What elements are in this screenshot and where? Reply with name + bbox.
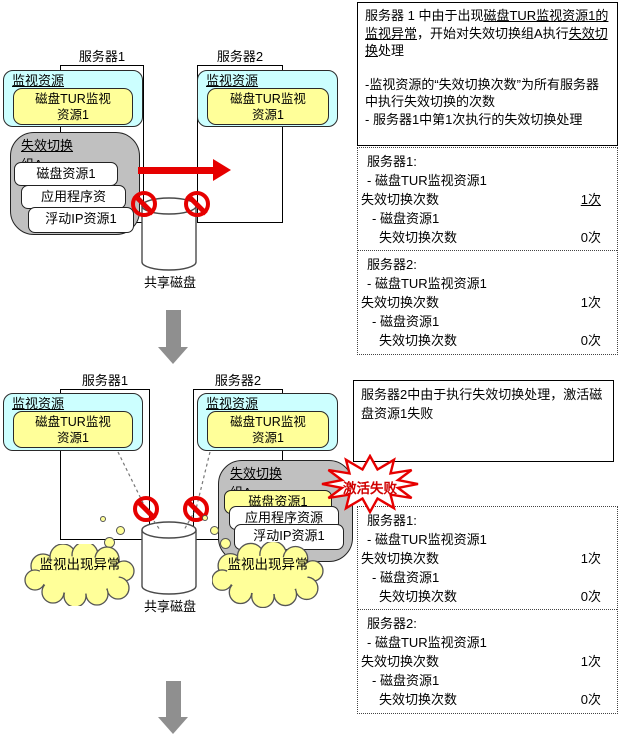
down-arrow-icon [166,681,181,717]
failover-arrow-head [213,159,231,181]
note-bullets: -监视资源的“失效切换次数”为所有服务器中执行失效切换的次数- 服务器1中第1次… [365,76,610,129]
stats-row: - 磁盘TUR监视资源1 [358,530,617,549]
monitor-resources-label: 监视资源 [4,71,142,88]
failover-diagram-page: 服务器1 服务器2 失效切换组A 磁盘资源1 应用程序资 浮动IP资源1 监视资… [0,0,620,737]
stats-row: 失效切换次数0次 [358,690,617,709]
server2-label-top: 服务器2 [195,49,285,65]
failover-stats-panel-top: 服务器1:- 磁盘TUR监视资源1失效切换次数1次- 磁盘资源1失效切换次数0次… [357,147,618,355]
stats-row-label: 失效切换次数 [379,230,457,245]
activation-failed-label: 激活失败 [330,477,410,497]
stats-row: 失效切换次数0次 [358,331,617,350]
disk-tur-monitor-resource-text: 磁盘TUR监视资源1 [32,91,114,123]
stats-row-label: 失效切换次数 [379,692,457,707]
note-text: 服务器2中由于执行失效切换处理，激活磁盘资源1失败 [361,385,606,423]
stats-row-label: 失效切换次数 [361,654,439,669]
server1-label-top: 服务器1 [57,49,147,65]
stats-row: - 磁盘资源1 [358,312,617,331]
stats-row-value: 1次 [581,652,601,671]
monitor-resources-label: 监视资源 [198,71,337,88]
stats-row: - 磁盘资源1 [358,671,617,690]
floating-ip-resource-box-top: 浮动IP资源1 [28,207,134,233]
stats-row-label: - 磁盘资源1 [372,570,439,585]
stats-divider [358,609,617,610]
stats-row: - 磁盘资源1 [358,568,617,587]
stats-row-label: - 磁盘资源1 [372,673,439,688]
stats-row-label: - 磁盘TUR监视资源1 [367,635,487,650]
stats-row: - 磁盘TUR监视资源1 [358,274,617,293]
stats-row: 失效切换次数1次 [358,293,617,312]
stats-section: 服务器1:- 磁盘TUR监视资源1失效切换次数1次- 磁盘资源1失效切换次数0次 [358,150,617,247]
disk-tur-monitor-resource-text: 磁盘TUR监视资源1 [227,414,309,446]
note-text-run: 处理 [378,43,404,58]
server1-label-bottom: 服务器1 [60,373,150,389]
stats-row: 失效切换次数1次 [358,190,617,209]
stats-server-title: 服务器2: [358,253,617,274]
stats-row-label: 失效切换次数 [361,192,439,207]
stats-row: 失效切换次数1次 [358,652,617,671]
cloud-tail-bubble [210,526,219,535]
stats-row-value: 1次 [581,190,601,209]
no-entry-icon [133,496,159,522]
note-text-run: 服务器 1 中由于出现 [365,8,483,23]
disk-resource-box-top: 磁盘资源1 [14,162,118,186]
stats-row-value: 0次 [581,228,601,247]
stats-row-value: 0次 [581,331,601,350]
stats-section: 服务器2:- 磁盘TUR监视资源1失效切换次数1次- 磁盘资源1失效切换次数0次 [358,612,617,709]
stats-row: - 磁盘TUR监视资源1 [358,633,617,652]
stats-row-label: 失效切换次数 [361,551,439,566]
no-entry-icon [131,191,157,217]
stats-row-label: 失效切换次数 [379,333,457,348]
stats-row: 失效切换次数1次 [358,549,617,568]
cloud-tail-bubble [100,516,106,522]
note-bullet: -监视资源的“失效切换次数”为所有服务器中执行失效切换的次数 [365,76,610,111]
disk-tur-monitor-resource-server1-bottom: 磁盘TUR监视资源1 [13,411,133,448]
stats-row-label: 失效切换次数 [361,295,439,310]
failover-stats-panel-bottom: 服务器1:- 磁盘TUR监视资源1失效切换次数1次- 磁盘资源1失效切换次数0次… [357,506,618,714]
stats-row-label: - 磁盘TUR监视资源1 [367,276,487,291]
thought-cloud-left [24,544,136,606]
stats-server-title: 服务器1: [358,150,617,171]
stats-row-label: - 磁盘TUR监视资源1 [367,532,487,547]
note-bullet: - 服务器1中第1次执行的失效切换处理 [365,111,610,129]
stats-row-label: 失效切换次数 [379,589,457,604]
cloud-tail-bubble [202,515,208,521]
stats-row-value: 1次 [581,293,601,312]
stats-row-value: 0次 [581,587,601,606]
cloud-text-right: 监视出现异常 [224,556,312,574]
monitor-resources-label: 监视资源 [198,394,337,411]
disk-tur-monitor-resource-text: 磁盘TUR监视资源1 [32,414,114,446]
thought-cloud-right [212,542,324,608]
disk-tur-monitor-resource-text: 磁盘TUR监视资源1 [227,91,309,123]
stats-row-value: 1次 [581,549,601,568]
stats-row: - 磁盘资源1 [358,209,617,228]
down-arrow-icon [166,310,181,347]
bottom-note-box: 服务器2中由于执行失效切换处理，激活磁盘资源1失败 [353,380,614,462]
stats-section: 服务器2:- 磁盘TUR监视资源1失效切换次数1次- 磁盘资源1失效切换次数0次 [358,253,617,350]
stats-row: - 磁盘TUR监视资源1 [358,171,617,190]
cloud-text-left: 监视出现异常 [36,556,124,574]
disk-tur-monitor-resource-server1-top: 磁盘TUR监视资源1 [13,88,133,125]
note-spacer [365,60,610,76]
stats-divider [358,250,617,251]
top-note-box: 服务器 1 中由于出现磁盘TUR监视资源1的监视异常，开始对失效切换组A执行失效… [357,2,618,146]
note-text-run: ，开始对失效切换组A执行 [417,26,569,41]
server2-label-bottom: 服务器2 [193,373,283,389]
cloud-tail-bubble [116,526,125,535]
app-resource-box-top: 应用程序资 [21,185,126,209]
disk-tur-monitor-resource-server2-bottom: 磁盘TUR监视资源1 [207,411,329,448]
shared-disk-cylinder-bottom [140,520,198,596]
failover-arrow-shaft [138,167,214,174]
down-arrow-icon [158,347,188,364]
stats-section: 服务器1:- 磁盘TUR监视资源1失效切换次数1次- 磁盘资源1失效切换次数0次 [358,509,617,606]
stats-row-value: 0次 [581,690,601,709]
stats-row-label: - 磁盘资源1 [372,314,439,329]
stats-row-label: - 磁盘资源1 [372,211,439,226]
note-intro: 服务器 1 中由于出现磁盘TUR监视资源1的监视异常，开始对失效切换组A执行失效… [365,7,610,60]
stats-row: 失效切换次数0次 [358,228,617,247]
monitor-resources-label: 监视资源 [4,394,142,411]
shared-disk-label-bottom: 共享磁盘 [134,596,206,615]
no-entry-icon [184,191,210,217]
disk-tur-monitor-resource-server2-top: 磁盘TUR监视资源1 [207,88,329,125]
stats-row: 失效切换次数0次 [358,587,617,606]
stats-server-title: 服务器2: [358,612,617,633]
stats-row-label: - 磁盘TUR监视资源1 [367,173,487,188]
down-arrow-icon [158,717,188,734]
shared-disk-label-top: 共享磁盘 [134,272,206,291]
